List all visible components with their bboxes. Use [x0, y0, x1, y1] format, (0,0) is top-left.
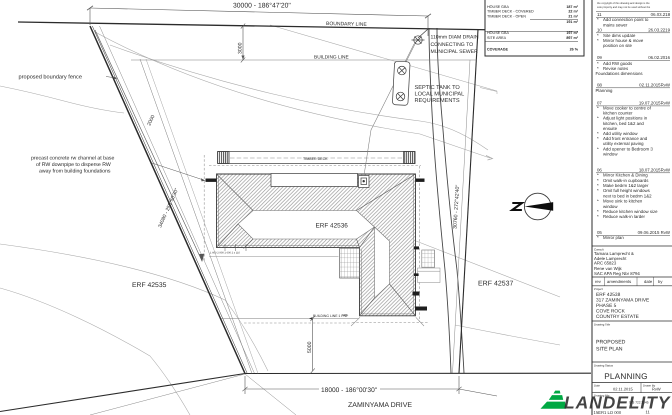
svg-text:of RW downpipe to disperse RW: of RW downpipe to disperse RW [36, 162, 111, 168]
svg-text:the copyright of this drawing: the copyright of this drawing and design… [597, 2, 650, 5]
svg-text:SEPTIC TANK TO: SEPTIC TANK TO [415, 85, 461, 91]
svg-text:26.03.2219: 26.03.2219 [648, 28, 670, 33]
svg-text:09: 09 [597, 55, 602, 60]
svg-text:06.03.218: 06.03.218 [651, 12, 671, 17]
svg-text:LOCAL MUNICIPAL: LOCAL MUNICIPAL [415, 92, 465, 98]
svg-text:TIMBER DECK - COVERED: TIMBER DECK - COVERED [487, 10, 534, 14]
svg-text:away from building foundations: away from building foundations [39, 169, 111, 175]
svg-text:*: * [597, 146, 599, 151]
svg-text:02.11.2015RvW: 02.11.2015RvW [639, 83, 671, 88]
svg-text:897 m²: 897 m² [566, 36, 578, 40]
svg-text:TIMBER DECK - OPEN: TIMBER DECK - OPEN [487, 14, 526, 18]
svg-text:187 m²: 187 m² [566, 5, 578, 9]
svg-text:COVE ROCK: COVE ROCK [596, 308, 626, 314]
svg-text:Date: Date [594, 383, 600, 387]
svg-text:Foundations dimensions: Foundations dimensions [596, 71, 644, 76]
svg-text:18000 - 186°00'30": 18000 - 186°00'30" [321, 387, 378, 394]
svg-text:PLANNING: PLANNING [604, 372, 647, 381]
svg-text:5000: 5000 [307, 341, 313, 353]
svg-text:197 m²: 197 m² [566, 31, 578, 35]
svg-text:ERF 42538: ERF 42538 [596, 292, 621, 298]
svg-text:rev: rev [595, 279, 602, 284]
svg-text:1 600 2 900 1 600 2 x 110: 1 600 2 900 1 600 2 x 110 [210, 252, 241, 255]
svg-text:COUNTRY ESTATE: COUNTRY ESTATE [596, 314, 639, 320]
svg-text:043 722 3345: 043 722 3345 [629, 401, 649, 405]
svg-text:Drawing Status: Drawing Status [594, 363, 614, 367]
svg-text:Project: Project [594, 287, 603, 291]
svg-text:PHASE 5: PHASE 5 [596, 303, 617, 309]
svg-text:317 ZAMINYAMA DRIVE: 317 ZAMINYAMA DRIVE [596, 297, 649, 303]
svg-text:COVERAGE: COVERAGE [487, 47, 509, 51]
svg-text:sole property and may not be u: sole property and may not be used withou… [597, 6, 651, 9]
svg-text:Mirror plan: Mirror plan [603, 235, 624, 240]
svg-text:110mm DIAM DRAIN: 110mm DIAM DRAIN [431, 35, 479, 41]
svg-text:22 m²: 22 m² [568, 10, 578, 14]
svg-text:*: * [597, 106, 599, 111]
svg-text:08: 08 [597, 83, 602, 88]
svg-text:*: * [597, 235, 599, 240]
svg-text:HOUSE GBA: HOUSE GBA [487, 5, 509, 9]
svg-text:SITE AREA: SITE AREA [487, 36, 507, 40]
svg-text:*: * [597, 38, 599, 43]
svg-text:Drawing Title: Drawing Title [594, 322, 611, 326]
svg-text:BUILDING LINE 1 PNP: BUILDING LINE 1 PNP [313, 314, 349, 318]
svg-text:ZAMINYAMA DRIVE: ZAMINYAMA DRIVE [348, 402, 412, 409]
svg-text:*: * [597, 214, 599, 219]
svg-text:ERF 42537: ERF 42537 [478, 281, 514, 288]
svg-text:30000 - 186°47'20": 30000 - 186°47'20" [233, 3, 291, 10]
svg-text:CONNECTING TO: CONNECTING TO [431, 42, 474, 48]
svg-text:ARC 65823: ARC 65823 [594, 261, 617, 266]
svg-text:3000: 3000 [238, 42, 244, 54]
svg-text:PROPOSED: PROPOSED [596, 340, 626, 346]
svg-text:02.11.2015: 02.11.2015 [613, 387, 633, 392]
svg-text:06.02.2016: 06.02.2016 [648, 55, 670, 60]
svg-text:SAC APA Reg Nbr 8794: SAC APA Reg Nbr 8794 [594, 271, 640, 276]
svg-text:proposed boundary fence: proposed boundary fence [19, 73, 82, 80]
svg-text:191 m²: 191 m² [566, 20, 578, 24]
svg-text:*: * [597, 136, 599, 141]
svg-text:ERF 42535: ERF 42535 [132, 282, 167, 289]
svg-text:BUILDING LINE: BUILDING LINE [314, 55, 349, 61]
svg-text:BOUNDARY LINE: BOUNDARY LINE [326, 21, 367, 28]
svg-text:ERF 42536: ERF 42536 [316, 222, 349, 229]
svg-text:HOUSE GBA: HOUSE GBA [487, 31, 509, 35]
svg-text:*: * [597, 188, 599, 193]
svg-text:position on site: position on site [603, 43, 633, 48]
svg-text:10: 10 [597, 28, 602, 33]
svg-text:Reduce walk-in larder: Reduce walk-in larder [603, 214, 646, 219]
svg-text:amendments: amendments [607, 279, 631, 284]
svg-text:*: * [597, 17, 599, 22]
svg-text:SITE PLAN: SITE PLAN [596, 347, 623, 353]
svg-text:MUNICIPAL SEWER: MUNICIPAL SEWER [431, 49, 479, 55]
svg-text:TIMBER DECK: TIMBER DECK [303, 157, 328, 161]
svg-text:RvW: RvW [652, 387, 661, 392]
svg-text:LANDELITY: LANDELITY [564, 392, 671, 412]
svg-text:09.06.2015 RvW: 09.06.2015 RvW [638, 230, 671, 235]
svg-text:*: * [597, 116, 599, 121]
svg-text:*: * [597, 199, 599, 204]
svg-text:REQUIREMENTS: REQUIREMENTS [415, 98, 460, 104]
svg-text:date: date [644, 279, 653, 284]
svg-text:mains sewer: mains sewer [603, 22, 628, 27]
svg-text:Planning: Planning [596, 88, 613, 93]
svg-text:21 m²: 21 m² [568, 14, 578, 18]
svg-text:precast concrete rw channel at: precast concrete rw channel at base [31, 156, 114, 162]
svg-text:26 %: 26 % [570, 47, 579, 51]
svg-text:window: window [603, 151, 618, 156]
